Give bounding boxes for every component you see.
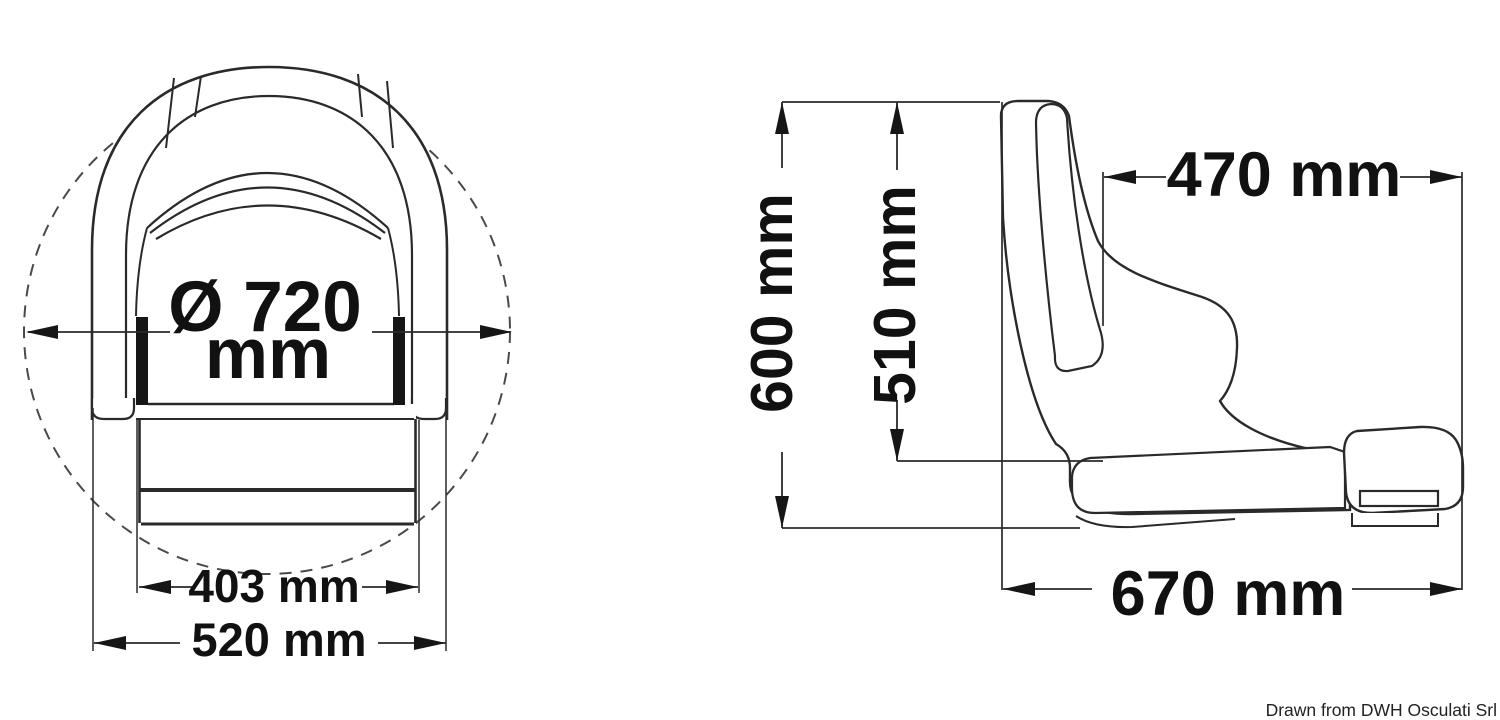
arrow-down-icon	[775, 496, 789, 528]
bracket-step	[1352, 513, 1438, 526]
inner-width-label: 403 mm	[188, 560, 359, 612]
arrow-left-icon	[1003, 582, 1035, 596]
shell-bottom-lip	[1076, 516, 1235, 527]
side-view: 600 mm 510 mm 470 mm 670 mm	[739, 101, 1463, 629]
front-view: Ø 720 mm 403 mm 520 mm	[24, 67, 512, 666]
arrow-up-icon	[775, 102, 789, 134]
seat-cushion-profile	[1072, 447, 1345, 513]
arrow-down-icon	[890, 429, 904, 461]
arch-column-cap-right	[412, 398, 446, 419]
overall-height-label: 600 mm	[739, 193, 805, 413]
arrow-left-icon	[1104, 170, 1136, 184]
arrow-left-icon	[26, 325, 58, 339]
overall-depth-dimension: 670 mm	[1003, 559, 1462, 629]
technical-drawing-page: Ø 720 mm 403 mm 520 mm	[0, 0, 1500, 720]
diameter-label-line2: mm	[205, 315, 331, 394]
overall-height-dimension: 600 mm	[739, 102, 805, 528]
seat-dimension-drawing: Ø 720 mm 403 mm 520 mm	[0, 0, 1500, 720]
outer-width-label: 520 mm	[191, 613, 366, 666]
arrow-left-icon	[94, 636, 126, 650]
inner-width-dimension: 403 mm	[139, 560, 418, 612]
backrest-height-dimension: 510 mm	[862, 102, 928, 461]
arrow-right-icon	[414, 636, 446, 650]
backrest-depth-label: 470 mm	[1167, 140, 1402, 210]
overall-depth-label: 670 mm	[1111, 559, 1346, 629]
arrow-right-icon	[386, 580, 418, 594]
arrow-right-icon	[1430, 170, 1462, 184]
hinge-bar-left	[136, 317, 148, 405]
arrow-right-icon	[480, 325, 512, 339]
backrest-height-label: 510 mm	[862, 185, 928, 405]
backrest-depth-dimension: 470 mm	[1104, 140, 1462, 210]
attribution-text: Drawn from DWH Osculati Srl	[1266, 700, 1497, 720]
outer-width-dimension: 520 mm	[94, 613, 446, 666]
arch-column-cap-left	[92, 398, 134, 419]
arrow-left-icon	[139, 580, 171, 594]
hinge-bar-right	[393, 317, 405, 405]
arrow-right-icon	[1430, 582, 1462, 596]
bracket-slot	[1360, 491, 1438, 506]
seat-base-fill	[139, 404, 416, 524]
arrow-up-icon	[890, 102, 904, 134]
